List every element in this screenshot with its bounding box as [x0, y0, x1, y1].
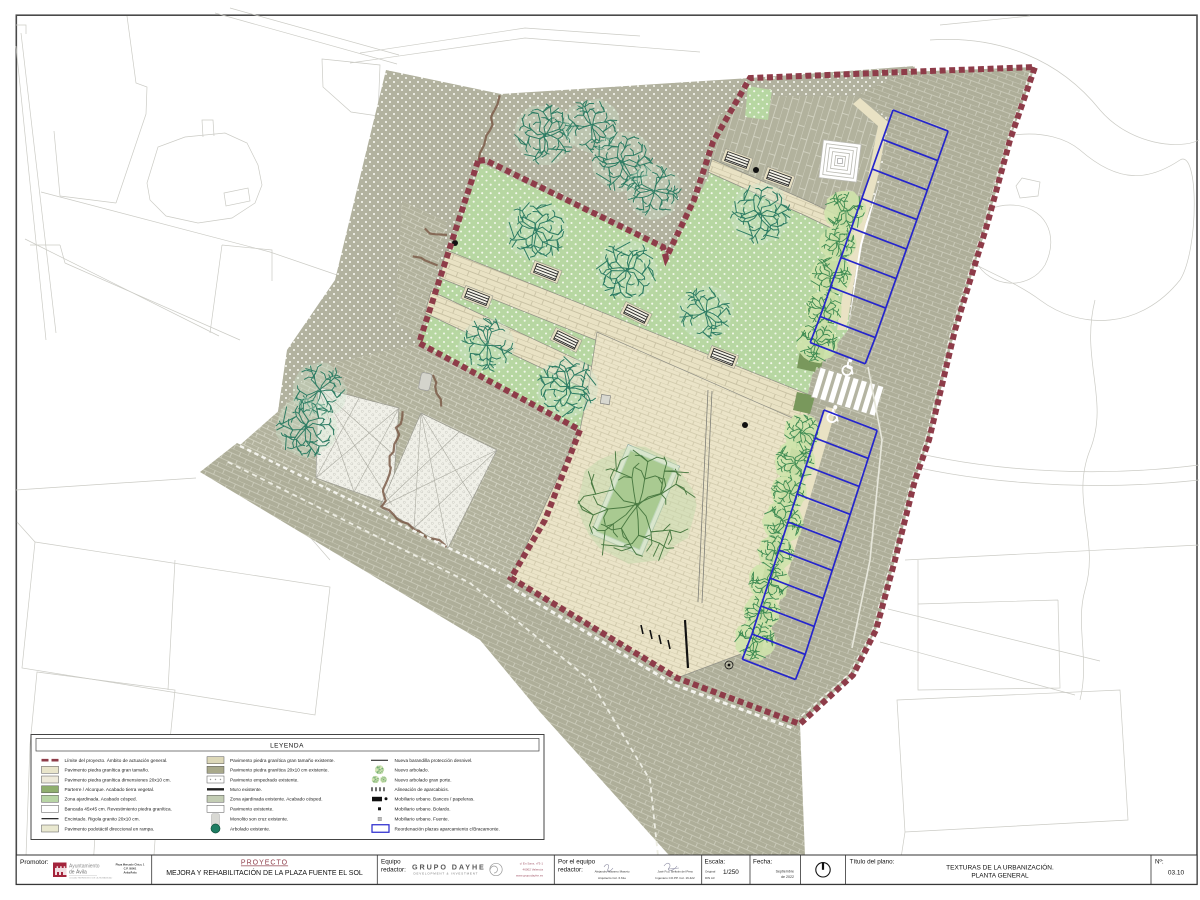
svg-text:Monolito son cruz existente.: Monolito son cruz existente. [230, 817, 288, 822]
svg-text:Muro existente.: Muro existente. [230, 787, 262, 792]
svg-text:Título del plano:: Título del plano: [850, 859, 895, 866]
svg-text:Alineación de aparcabicis.: Alineación de aparcabicis. [395, 787, 449, 792]
svg-text:Nueva barandilla protección de: Nueva barandilla protección desnivel. [395, 758, 473, 763]
svg-text:GRUPO DAYHE: GRUPO DAYHE [412, 863, 486, 872]
svg-text:Encintado. Rigola granito 20x1: Encintado. Rigola granito 20x10 cm. [65, 817, 140, 822]
svg-text:Pavimento empedrado existente.: Pavimento empedrado existente. [230, 777, 299, 782]
svg-text:PROYECTO: PROYECTO [241, 860, 288, 867]
svg-text:Nuevo arbolado gran porte.: Nuevo arbolado gran porte. [395, 777, 452, 782]
svg-text:DIN A3: DIN A3 [705, 876, 715, 880]
svg-text:DEVELOPMENT & INVESTMENT: DEVELOPMENT & INVESTMENT [414, 872, 479, 876]
svg-text:Arbolado existente.: Arbolado existente. [230, 826, 270, 831]
svg-text:PLANTA GENERAL: PLANTA GENERAL [971, 873, 1029, 880]
svg-text:Reordenación plazas aparcamien: Reordenación plazas aparcamiento c/Braca… [395, 826, 500, 831]
svg-text:de 2022: de 2022 [781, 875, 794, 879]
svg-text:Plaza Mercado Chico, 1: Plaza Mercado Chico, 1 [116, 863, 145, 867]
svg-text:www.grupodayhe.es: www.grupodayhe.es [516, 874, 544, 878]
svg-text:C.P. 05001: C.P. 05001 [124, 867, 137, 871]
svg-text:Nº:: Nº: [1155, 859, 1164, 866]
svg-text:Arquitecto Col. 6.61e: Arquitecto Col. 6.61e [598, 876, 626, 880]
svg-text:46002 Valencia: 46002 Valencia [523, 868, 544, 872]
svg-text:1/250: 1/250 [723, 869, 739, 876]
svg-text:Mobiliario urbano. Fuente.: Mobiliario urbano. Fuente. [395, 817, 449, 822]
svg-text:Zona ajardinada existente. Aca: Zona ajardinada existente. Acabado céspe… [230, 797, 323, 802]
svg-text:Pavimento piedra granítica dim: Pavimento piedra granítica dimensiones 2… [65, 777, 171, 782]
svg-text:Parterre / Alcorque. Acabado t: Parterre / Alcorque. Acabado tierra vege… [65, 787, 155, 792]
svg-text:Pavimento existente.: Pavimento existente. [230, 807, 274, 812]
svg-text:Mobiliario urbano. Bancos / pa: Mobiliario urbano. Bancos / papeleras. [395, 797, 475, 802]
svg-text:José Fco. Beltrán del Pera: José Fco. Beltrán del Pera [657, 870, 693, 874]
svg-text:Escala:: Escala: [705, 859, 726, 866]
svg-text:Fecha:: Fecha: [753, 859, 773, 866]
svg-text:Pavimento podotáctil direccion: Pavimento podotáctil direccional en ramp… [65, 826, 155, 831]
svg-text:c/ En Sanz, nº3-1: c/ En Sanz, nº3-1 [520, 862, 544, 866]
svg-text:TEXTURAS DE LA URBANIZACIÓN.: TEXTURAS DE LA URBANIZACIÓN. [946, 863, 1054, 872]
svg-text:Ingeniero CO.PP. Col. 16.422: Ingeniero CO.PP. Col. 16.422 [655, 876, 695, 880]
svg-text:LEYENDA: LEYENDA [270, 743, 304, 750]
svg-text:Por el equipo: Por el equipo [558, 859, 596, 866]
svg-text:Equipo: Equipo [381, 859, 401, 866]
svg-text:Límite del proyecto. Ámbito de: Límite del proyecto. Ámbito de actuación… [65, 757, 168, 763]
svg-text:Septiembre: Septiembre [776, 870, 794, 874]
svg-text:Pavimento piedra granítica gra: Pavimento piedra granítica gran tamaño. [65, 768, 150, 773]
svg-text:Alejandro Navarro Maeztu: Alejandro Navarro Maeztu [595, 870, 630, 874]
svg-text:Pavimento piedra granítica gra: Pavimento piedra granítica gran tamaño e… [230, 758, 335, 763]
svg-text:redactor:: redactor: [558, 867, 583, 874]
svg-text:Original: Original [705, 870, 716, 874]
svg-text:CIUDAD PATRIMONIO DE LA HUMANI: CIUDAD PATRIMONIO DE LA HUMANIDAD [69, 877, 113, 880]
svg-text:Bancada 45x45 cm. Revestimient: Bancada 45x45 cm. Revestimiento piedra g… [65, 807, 172, 812]
svg-text:de Ávila: de Ávila [69, 869, 87, 876]
svg-text:Zona ajardinada. Acabado céspe: Zona ajardinada. Acabado césped. [65, 797, 137, 802]
svg-text:Nuevo arbolado.: Nuevo arbolado. [395, 768, 429, 773]
svg-text:MEJORA Y REHABILITACIÓN DE LA: MEJORA Y REHABILITACIÓN DE LA PLAZA FUEN… [166, 868, 363, 877]
svg-text:Mobiliario urbano. Bolardo.: Mobiliario urbano. Bolardo. [395, 807, 451, 812]
svg-text:Promotor:: Promotor: [20, 859, 49, 866]
svg-text:03.10: 03.10 [1168, 870, 1185, 877]
svg-text:redactor:: redactor: [381, 867, 406, 874]
svg-text:Pavimento piedra granítica 20x: Pavimento piedra granítica 20x10 cm exis… [230, 768, 329, 773]
